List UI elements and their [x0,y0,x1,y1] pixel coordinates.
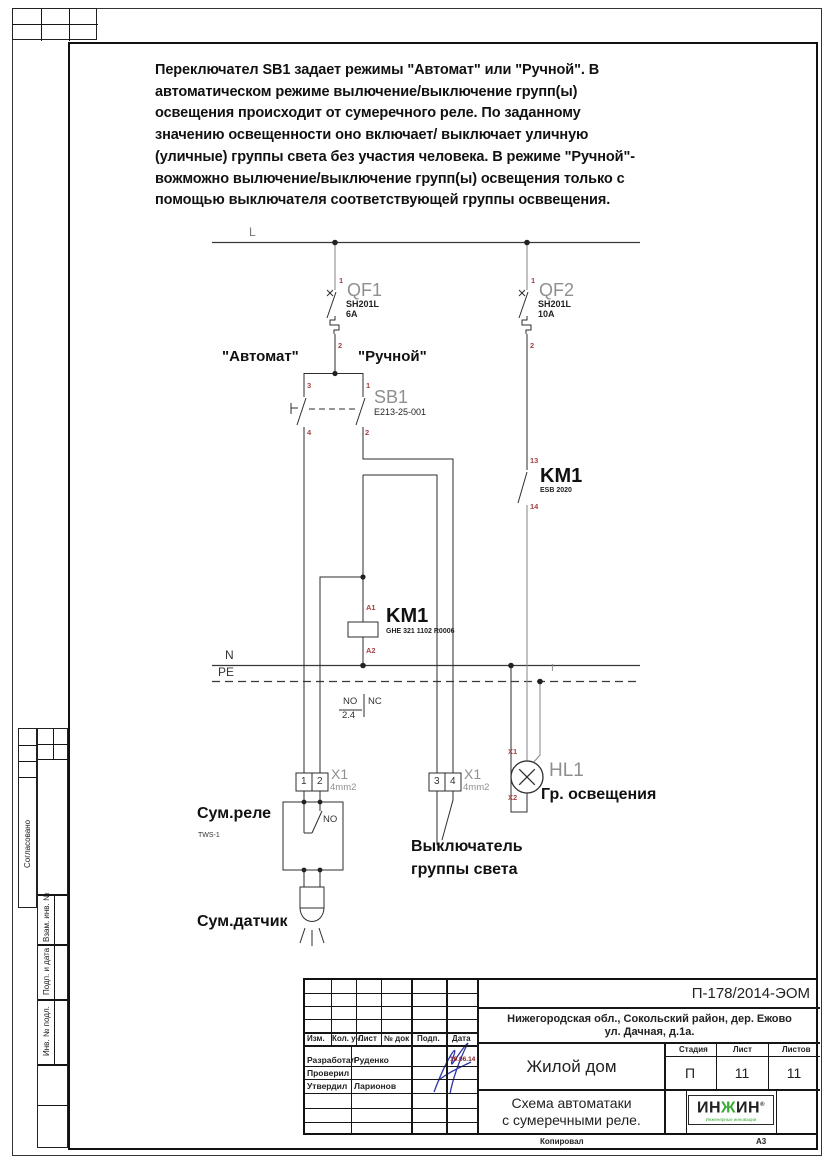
object-name-cell: Жилой дом [479,1044,664,1089]
object-name: Жилой дом [526,1057,616,1077]
logo-box: ИНЖИН® Инженерные инновации [688,1095,774,1125]
logo-zh: Ж [721,1099,736,1116]
mode-manual-label: "Ручной" [358,349,427,364]
km1-contact-label: KM1 [540,466,582,486]
qf1-label: QF1 [347,281,382,299]
sign-date-0: 10.06.14 [450,1057,475,1064]
col-list: Лист [358,1035,377,1043]
x1-left-cell1: 1 [301,777,307,787]
qf1-terminal-bottom: 2 [338,342,342,350]
light-switch-blade [442,800,453,840]
mode-auto-label: "Автомат" [222,349,299,364]
x1-right-cell1: 3 [434,777,440,787]
km1-terminal-14: 14 [530,503,538,511]
x1-right-cell2: 4 [450,777,456,787]
light-switch-caption-1: Выключатель [411,839,523,855]
dusk-relay-model: TWS-1 [198,832,220,839]
address-line1: Нижегородская обл., Сокольский район, де… [507,1013,792,1026]
bus-pe-label: PE [218,666,234,678]
bus-n-label: N [225,649,234,661]
relay-contact-nc: NC [368,697,382,707]
km1-terminal-a1: A1 [366,604,376,612]
qf1-rating: 6A [346,310,358,319]
x1-left-label: X1 [331,767,348,781]
podp-data-label: Подп. и дата [42,948,51,995]
sb1-terminal-2: 2 [365,429,369,437]
hl1-terminal-x1: X1 [508,748,517,756]
qf2-rating: 10A [538,310,555,319]
sb1-terminal-3: 3 [307,382,311,390]
km1-terminal-a2: A2 [366,647,376,655]
dusk-relay-no-label: NO [323,815,337,825]
sb1-terminal-1: 1 [366,382,370,390]
km1-coil-symbol [348,622,378,637]
sign-name-2: Ларионов [354,1082,396,1091]
doc-number-cell: П-178/2014-ЭОМ [479,980,820,1007]
sb1-switch-symbol [291,373,365,425]
sign-role-2: Утвердил [307,1082,347,1091]
pe-drop [533,682,540,763]
km1-coil-label: KM1 [386,606,428,626]
qf1-breaker-symbol [327,290,339,373]
address-line2: ул. Дачная, д.1а. [605,1026,695,1039]
doc-number: П-178/2014-ЭОМ [692,985,810,1002]
qf2-model: SH201L [538,300,571,309]
logo-reg: ® [760,1102,765,1108]
qf1-model: SH201L [346,300,379,309]
drawing-sheet: Переключател SB1 задает режимы "Автомат"… [0,0,832,1166]
wire-relay-return [320,577,363,773]
stage-label: Стадия [679,1046,708,1054]
light-switch-caption-2: группы света [411,862,518,878]
col-doc: № док [384,1035,409,1043]
x1-left-cell2: 2 [317,777,323,787]
logo-text: ИН [697,1099,721,1116]
qf2-breaker-symbol [519,290,531,470]
approved-label: Согласовано [23,820,32,868]
sign-role-0: Разработал [307,1056,356,1065]
sheet-value: 11 [735,1065,750,1081]
qf2-terminal-top: 1 [531,277,535,285]
relay-contact-no: NO [343,697,357,707]
hl1-lamp-symbol [511,761,543,793]
km1-coil-model: GHE 321 1102 R0006 [386,628,455,635]
format-label: А3 [756,1138,766,1146]
sheet-name-cell: Схема автоматаки с сумеречными реле. [479,1091,664,1133]
logo-tagline: Инженерные инновации [689,1117,773,1122]
bus-l-label: L [249,226,256,238]
sheet-value-cell: 11 [716,1057,768,1089]
title-block: Изм. Кол. уч. Лист № док Подп. Дата Разр… [303,978,818,1135]
dusk-relay-caption: Сум.реле [197,806,271,822]
inv-podl-label: Инв. № подл. [42,1006,51,1056]
dusk-sensor-symbol [300,887,324,946]
qf1-terminal-top: 1 [339,277,343,285]
vzam-inv-label: Взам. инв. № [42,892,51,942]
sheets-value-cell: 11 [768,1057,820,1089]
x1-right-wire: 4mm2 [463,783,489,793]
sign-role-1: Проверил [307,1069,349,1078]
col-podp: Подп. [417,1035,440,1043]
address-cell: Нижегородская обл., Сокольский район, де… [479,1009,820,1042]
sheet-name-line2: с сумеречными реле. [502,1112,641,1129]
qf2-label: QF2 [539,281,574,299]
sb1-terminal-4: 4 [307,429,311,437]
stage-value-cell: П [664,1057,716,1089]
x1-left-wire: 4mm2 [330,783,356,793]
qf2-terminal-bottom: 2 [530,342,534,350]
sb1-model: E213-25-001 [374,408,426,417]
copied-label: Копировал [540,1138,584,1146]
sheet-name-line1: Схема автоматаки [511,1095,631,1112]
sign-name-0: Руденко [354,1056,389,1065]
x1-right-label: X1 [464,767,481,781]
col-date: Дата [452,1035,471,1043]
sb1-label: SB1 [374,388,408,406]
approved-column [18,728,37,908]
sheets-label: Листов [782,1046,811,1054]
sheet-label: Лист [733,1046,752,1054]
col-izm: Изм. [307,1035,325,1043]
relay-contact-ref: 2.4 [342,711,355,721]
km1-contact-model: ESB 2020 [540,487,572,494]
stage-value: П [685,1065,695,1081]
lighting-group-caption: Гр. освещения [541,787,656,803]
km1-contact-blade [518,472,527,503]
logo-text2: ИН [736,1099,760,1116]
km1-terminal-13: 13 [530,457,538,465]
hl1-label: HL1 [549,761,584,780]
sheets-value: 11 [787,1065,802,1081]
hl1-terminal-x2: X2 [508,794,517,802]
wire-i-label: I [551,664,554,674]
dusk-sensor-caption: Сум.датчик [197,914,288,930]
wire-manual-branch [363,427,453,773]
